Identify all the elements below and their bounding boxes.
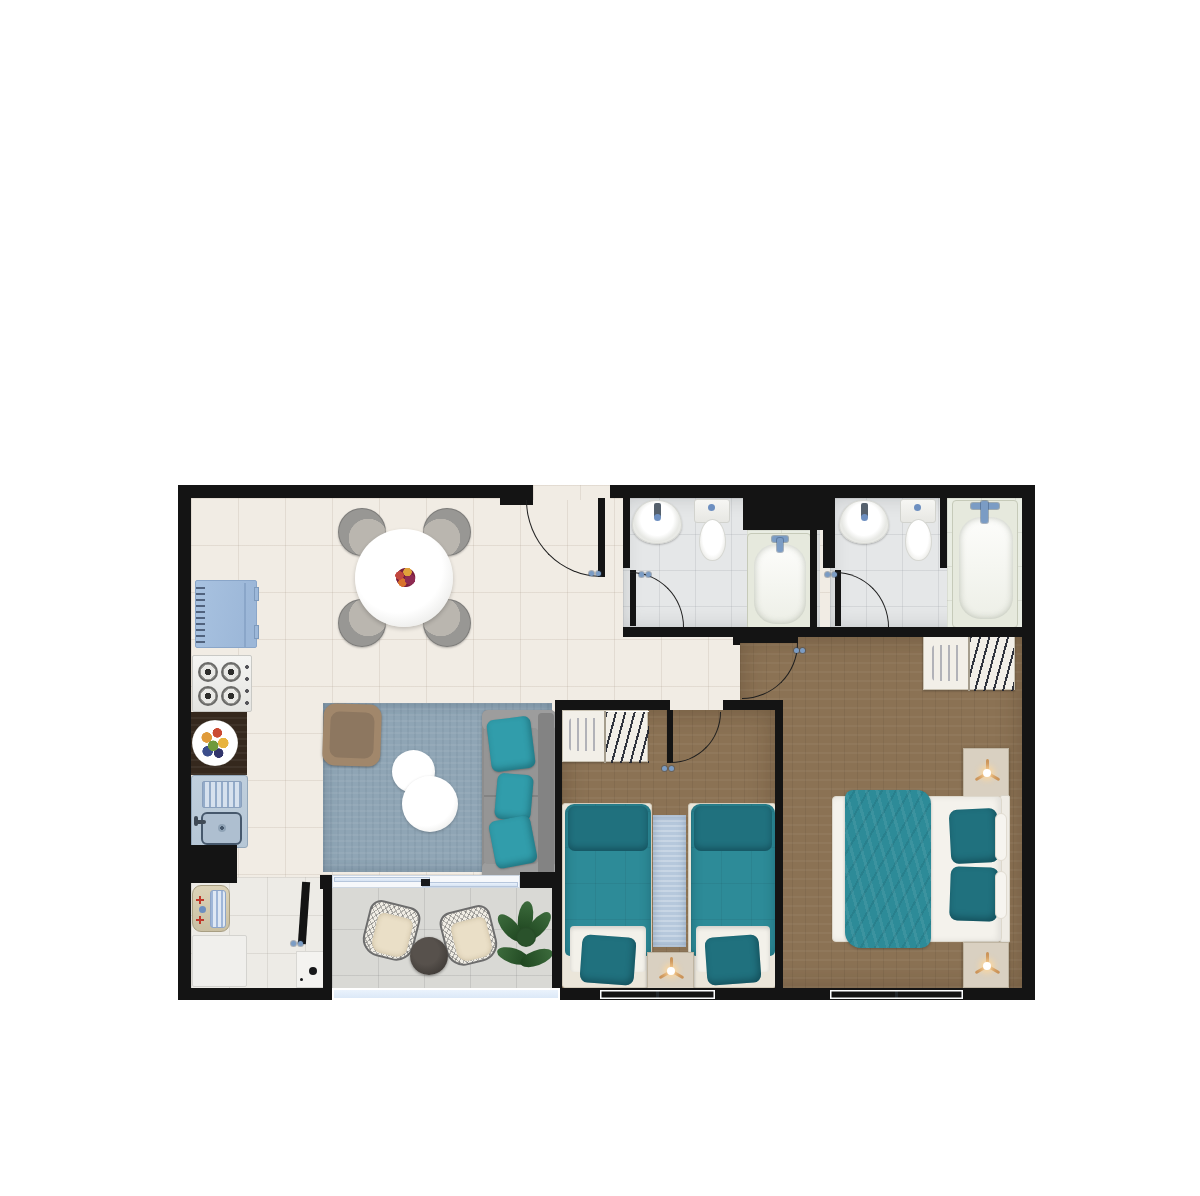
bathroom1-toilet: [694, 499, 730, 561]
laundry-faucet-knob: [199, 906, 206, 913]
laundry-faucet-red-handle: [196, 896, 204, 904]
laundry-door-handle: [291, 941, 296, 946]
wall-laundry-balcony: [323, 888, 332, 988]
coffee-table-large: [402, 776, 458, 832]
bedroom2-door-handle: [794, 648, 799, 653]
chair-cushion: [370, 912, 415, 960]
toilet-bowl: [699, 519, 726, 561]
bathroom2-toilet: [900, 499, 936, 561]
entry-door-handle: [596, 571, 601, 576]
bed-pillow-lower: [949, 866, 999, 922]
wall-hall-bedroom2-stub: [733, 637, 740, 645]
table-lamp: [972, 758, 1002, 788]
toilet-bowl: [905, 519, 932, 561]
bathtub-interior: [959, 517, 1013, 619]
sofa-pillow-3: [488, 814, 538, 869]
lamp-glow: [983, 962, 991, 970]
sink-faucet-base: [194, 816, 198, 826]
page-background: [0, 0, 1200, 1196]
bedroom1-door-handle: [662, 766, 667, 771]
wall-bedroom-divider: [775, 703, 783, 988]
sink-drainboard: [202, 781, 242, 808]
wall-bathrooms-bottom: [623, 627, 1022, 637]
wall-laundry-stub: [320, 875, 332, 889]
bedroom1-nightstand: [647, 952, 694, 989]
bedroom2-nightstand-upper: [963, 748, 1009, 797]
refrigerator: [195, 580, 257, 648]
bathroom2-bathtub: [952, 500, 1018, 628]
slider-pane-left: [334, 877, 430, 882]
wall-bedroom1-left: [555, 705, 562, 888]
chair-cushion: [450, 916, 495, 964]
sofa: [482, 710, 556, 882]
toilet-flush-button: [708, 504, 715, 511]
fridge-door-line: [244, 583, 246, 647]
appliance-button: [300, 978, 303, 981]
twin-bed-left: [562, 803, 652, 988]
laundry-door-handle: [298, 941, 303, 946]
table-lamp: [972, 951, 1002, 981]
stove-burner: [198, 662, 218, 682]
kitchen-sink-unit: [191, 775, 248, 848]
bedroom2-window: [830, 990, 963, 999]
laundry-faucet-red-handle: [196, 916, 204, 924]
closet-hangers: [606, 711, 649, 763]
washing-machine: [192, 935, 247, 987]
armchair-seat: [329, 711, 375, 759]
twin-bed-accent-pillow: [579, 934, 636, 986]
laundry-sink: [192, 885, 230, 932]
fridge-handle-top: [254, 587, 259, 601]
bedroom1-door-handle: [669, 766, 674, 771]
bedroom2-nightstand-lower: [963, 942, 1009, 988]
small-appliance: [296, 951, 326, 988]
basin-faucet-knob: [861, 514, 868, 521]
appliance-dial: [309, 967, 317, 975]
wall-balcony-corner: [520, 872, 562, 888]
wall-bathroom1-left: [623, 498, 630, 568]
wall-bedroom1-top-left: [555, 700, 670, 710]
bathtub-interior: [754, 544, 806, 624]
bed-teal-blanket: [845, 790, 931, 948]
wall-kitchen-lower: [178, 845, 237, 883]
lamp-glow: [983, 769, 991, 777]
bathroom2-door-handle: [825, 572, 830, 577]
plant-center: [516, 927, 536, 947]
wall-bedroom1-left-lower: [552, 885, 562, 988]
balcony-side-table: [410, 937, 448, 975]
fridge-vents: [196, 585, 205, 643]
wall-left: [178, 485, 191, 1000]
flower-centerpiece: [392, 565, 417, 590]
wall-right: [1022, 485, 1035, 1000]
wall-tub1-side: [810, 530, 817, 627]
bathroom1-door-handle: [646, 572, 651, 577]
sofa-pillow-2: [494, 773, 534, 822]
stove-knobs: [243, 661, 251, 709]
double-bed: [832, 793, 1010, 945]
wall-bathroom2-left: [823, 498, 835, 568]
bathtub-spout: [981, 501, 988, 523]
folded-clothes-blue: [569, 718, 599, 751]
fridge-handle-bottom: [254, 625, 259, 639]
basin-faucet-knob: [654, 514, 661, 521]
stove-burner: [221, 662, 241, 682]
bedroom2-closet: [923, 635, 1015, 690]
bathroom2-washbasin: [839, 500, 889, 544]
balcony-glass-railing: [332, 988, 560, 1000]
stove-burner: [221, 686, 241, 706]
table-lamp: [656, 956, 686, 986]
potted-plant: [503, 901, 549, 979]
sink-drain: [218, 824, 226, 832]
bed-bolster-lower: [995, 871, 1007, 919]
bathroom1-washbasin: [632, 500, 682, 544]
twin-bed-pillow: [568, 806, 648, 851]
sofa-pillow-1: [486, 716, 536, 773]
fruit-plate: [192, 720, 238, 766]
bed-pillow-upper: [949, 808, 1000, 864]
bedroom1-runner-rug: [653, 815, 686, 947]
bedroom2-door-handle: [800, 648, 805, 653]
bedroom1-closet: [562, 710, 648, 762]
lamp-glow: [667, 967, 675, 975]
wall-duct-shaft: [743, 490, 826, 530]
bathtub-spout: [777, 538, 783, 552]
slider-pane-right: [422, 882, 518, 887]
bed-bolster-upper: [995, 813, 1007, 861]
gas-stove: [192, 655, 252, 712]
folded-clothes-blue: [932, 645, 962, 681]
wall-top-left: [178, 485, 533, 498]
wall-toilet-tub-divider: [940, 498, 947, 568]
bathroom1-door-handle: [639, 572, 644, 577]
toilet-flush-button: [914, 504, 921, 511]
twin-bed-pillow: [694, 806, 772, 851]
apartment-floor-plan: [178, 485, 1035, 1000]
closet-hangers: [970, 636, 1014, 691]
twin-bed-accent-pillow: [704, 934, 761, 986]
laundry-washboard: [210, 890, 226, 928]
sofa-backrest: [538, 713, 554, 879]
stove-burner: [198, 686, 218, 706]
entry-door-handle: [589, 571, 594, 576]
balcony-sliding-door: [332, 875, 520, 888]
slider-handle: [421, 879, 430, 886]
bathroom2-door-handle: [832, 572, 837, 577]
wall-bedroom1-top-right: [723, 700, 783, 710]
bathroom1-bathtub: [747, 533, 811, 630]
twin-bed-right: [688, 803, 776, 988]
armchair: [322, 703, 382, 767]
bedroom1-window: [600, 990, 715, 999]
